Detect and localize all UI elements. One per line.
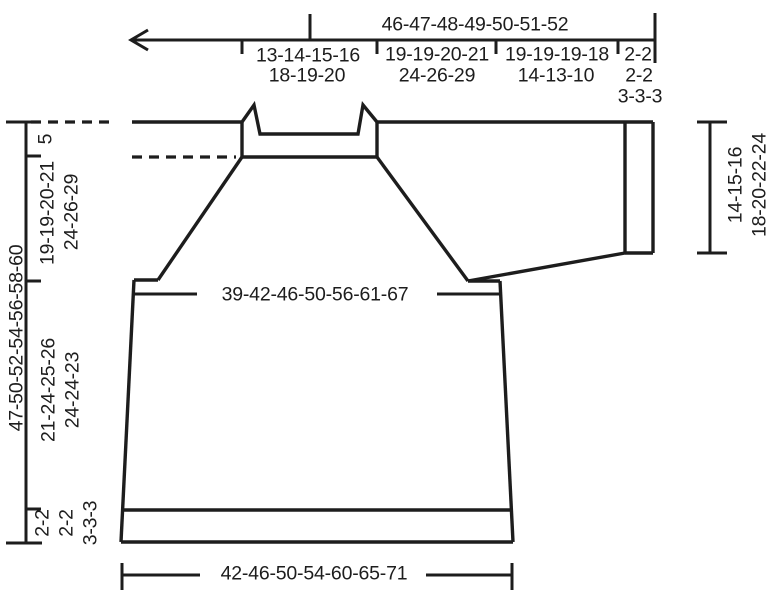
right-side-edge [500, 281, 513, 542]
top-segment3-line2: 14-13-10 [518, 66, 594, 86]
dashed-guides [31, 122, 236, 157]
top-total-width-label: 46-47-48-49-50-51-52 [382, 15, 569, 35]
right-raglan-line [377, 157, 468, 281]
sleeve-length-line1: 14-15-16 [726, 147, 746, 223]
knitting-pattern-schematic: 46-47-48-49-50-51-52 13-14-15-16 18-19-2… [0, 0, 780, 600]
top-segment2-line1: 19-19-20-21 [385, 45, 489, 65]
ribbing-line3: 3-3-3 [81, 501, 101, 546]
body-length-line1: 21-24-25-26 [39, 338, 59, 442]
ribbing-line1: 2-2 [33, 509, 53, 537]
neck-depth-label: 5 [36, 134, 56, 145]
ribbing-line2: 2-2 [57, 509, 77, 537]
top-segment1-line1: 13-14-15-16 [256, 46, 360, 66]
hem-width-label: 42-46-50-54-60-65-71 [221, 564, 408, 584]
left-side-edge [121, 280, 134, 542]
sleeve-length-ruler [697, 122, 727, 253]
sweater-outline [121, 105, 653, 542]
sleeve-length-line2: 18-20-22-24 [750, 133, 770, 237]
top-segment2-line2: 24-26-29 [399, 66, 475, 86]
chest-width-label: 39-42-46-50-56-61-67 [222, 285, 409, 305]
top-segment4-line2: 2-2 [625, 66, 653, 86]
yoke-depth-line2: 24-26-29 [62, 174, 82, 250]
top-segment4-line1: 2-2 [624, 45, 652, 65]
left-raglan-line [158, 157, 242, 280]
top-segment4-line3: 3-3-3 [618, 87, 663, 107]
yoke-depth-line1: 19-19-20-21 [38, 161, 58, 265]
top-segment3-line1: 19-19-19-18 [505, 45, 609, 65]
top-edge-and-neckline [132, 105, 653, 134]
total-length-label: 47-50-52-54-56-58-60 [7, 245, 27, 432]
body-length-line2: 24-24-23 [63, 352, 83, 428]
top-segment1-line2: 18-19-20 [269, 66, 345, 86]
sleeve-underside-edge [468, 253, 625, 281]
